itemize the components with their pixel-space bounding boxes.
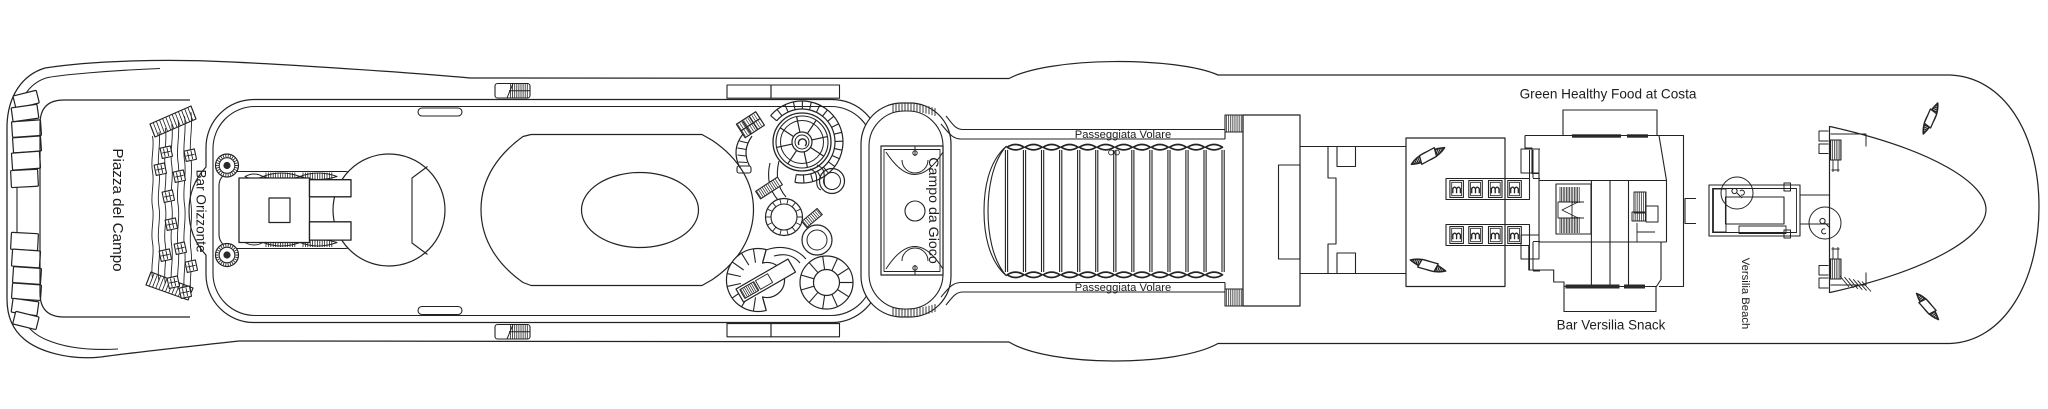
svg-text:Versilia Beach: Versilia Beach	[1739, 258, 1751, 330]
svg-text:Campo da Gioco: Campo da Gioco	[925, 157, 941, 264]
svg-text:Passeggiata Volare: Passeggiata Volare	[1075, 282, 1171, 294]
svg-text:Green Healthy Food at Costa: Green Healthy Food at Costa	[1520, 87, 1697, 102]
svg-text:Passeggiata Volare: Passeggiata Volare	[1075, 129, 1171, 141]
svg-text:Bar Versilia Snack: Bar Versilia Snack	[1557, 318, 1666, 333]
svg-text:Piazza del Campo: Piazza del Campo	[109, 148, 126, 271]
